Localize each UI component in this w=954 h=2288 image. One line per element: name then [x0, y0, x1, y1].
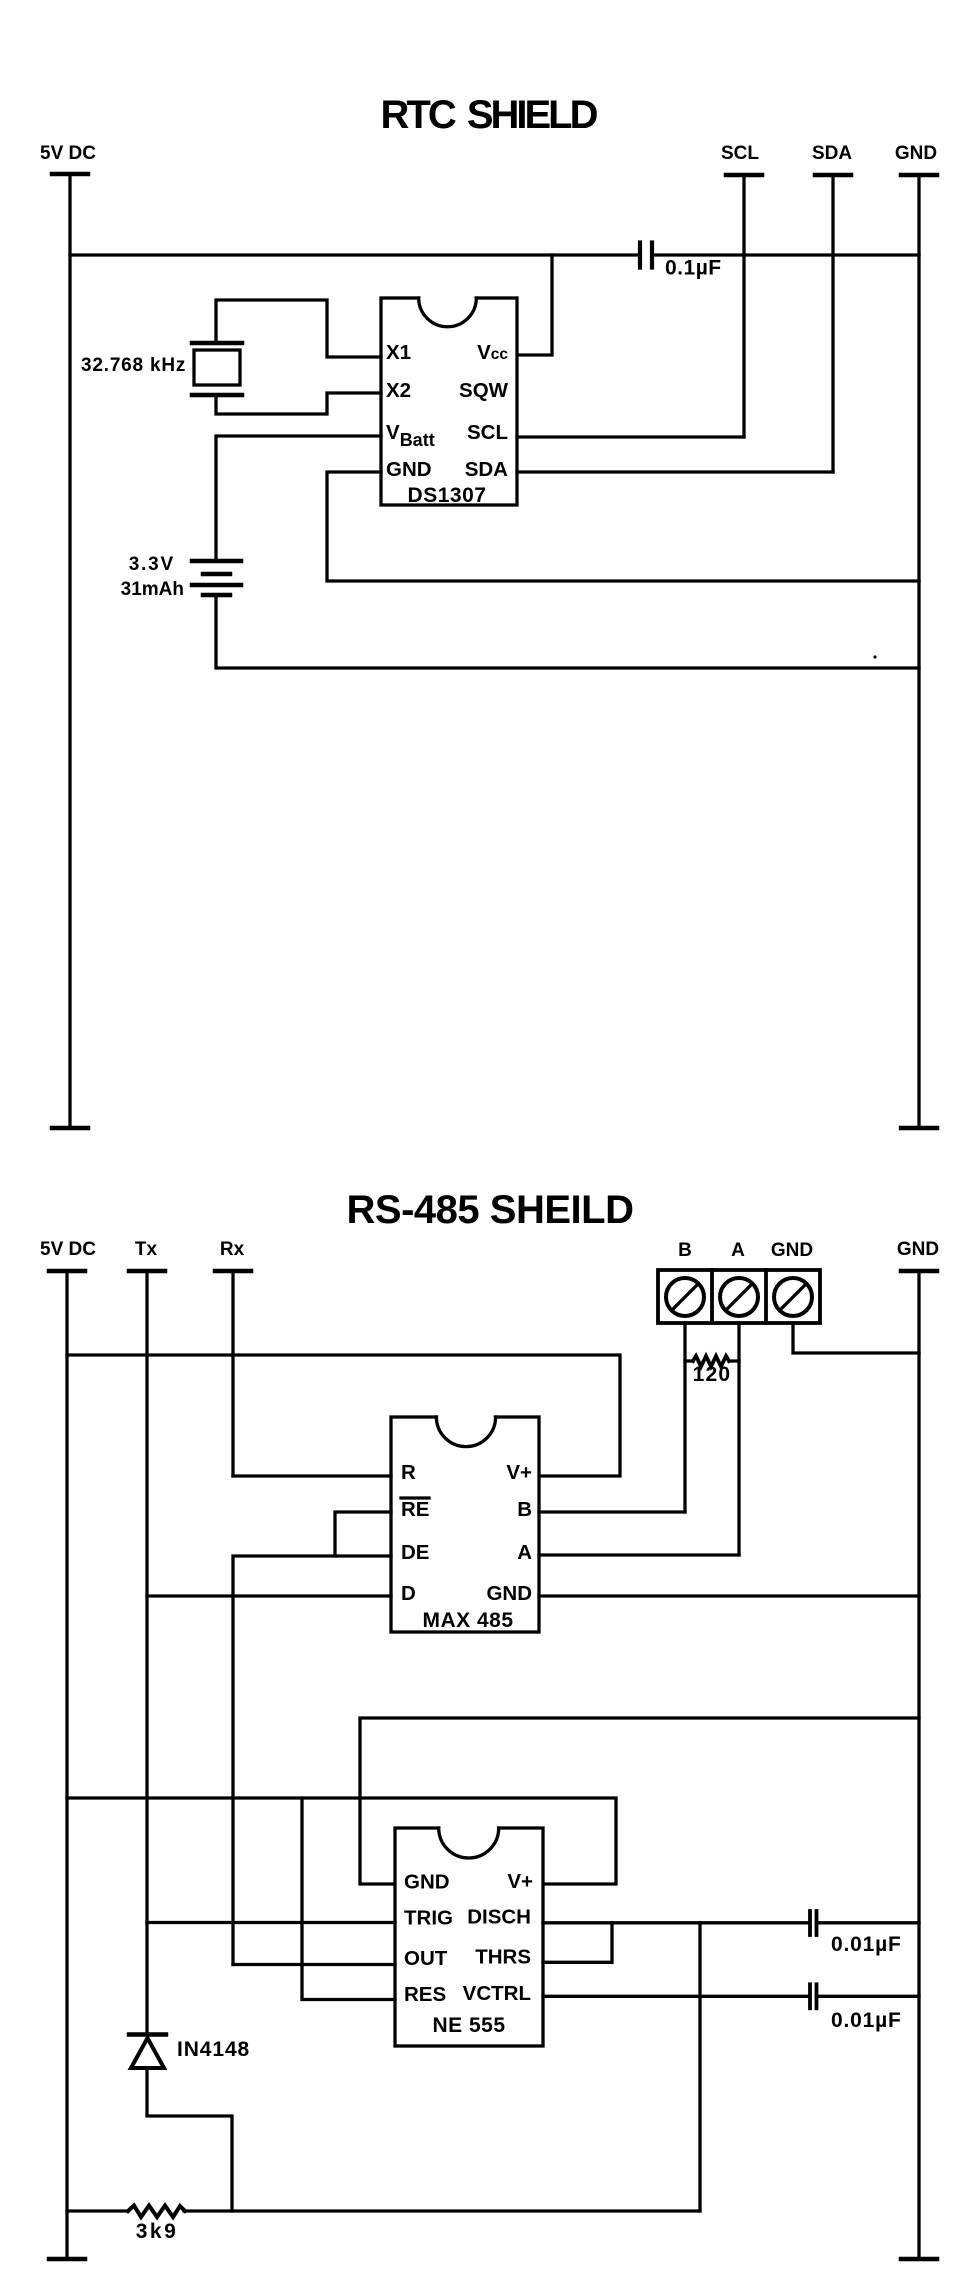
svg-text:TRIG: TRIG: [404, 1907, 453, 1930]
svg-text:5V DC: 5V DC: [40, 143, 96, 164]
svg-text:MAX 485: MAX 485: [422, 1609, 513, 1632]
svg-text:GND: GND: [895, 143, 937, 164]
svg-text:RES: RES: [404, 1983, 446, 2006]
svg-text:DS1307: DS1307: [408, 484, 487, 507]
svg-text:R: R: [401, 1461, 416, 1484]
svg-text:NE 555: NE 555: [432, 2014, 505, 2037]
svg-text:Rx: Rx: [220, 1239, 245, 1260]
svg-text:31mAh: 31mAh: [121, 579, 184, 600]
svg-text:GND: GND: [771, 1240, 813, 1261]
svg-text:SQW: SQW: [459, 379, 509, 402]
svg-text:V+: V+: [506, 1461, 532, 1484]
svg-text:SCL: SCL: [721, 143, 759, 164]
svg-text:RTC SHIELD: RTC SHIELD: [381, 93, 598, 137]
svg-text:DE: DE: [401, 1541, 429, 1564]
svg-text:IN4148: IN4148: [177, 2038, 250, 2061]
svg-text:5V DC: 5V DC: [40, 1239, 96, 1260]
svg-text:DISCH: DISCH: [467, 1906, 531, 1929]
svg-text:120: 120: [693, 1363, 732, 1386]
svg-text:A: A: [731, 1240, 745, 1261]
svg-text:D: D: [401, 1582, 416, 1605]
svg-text:THRS: THRS: [475, 1946, 531, 1969]
svg-text:X1: X1: [386, 341, 411, 364]
svg-text:3k9: 3k9: [136, 2220, 179, 2243]
svg-text:X2: X2: [386, 379, 411, 402]
svg-text:OUT: OUT: [404, 1947, 448, 1970]
svg-text:VCTRL: VCTRL: [463, 1982, 531, 2005]
svg-text:3.3V: 3.3V: [129, 554, 175, 575]
svg-text:32.768 kHz: 32.768 kHz: [81, 355, 186, 376]
svg-text:RE: RE: [401, 1498, 429, 1521]
svg-text:GND: GND: [386, 458, 432, 481]
svg-text:SDA: SDA: [465, 458, 508, 481]
svg-text:B: B: [678, 1240, 692, 1261]
svg-text:GND: GND: [486, 1582, 532, 1605]
svg-text:GND: GND: [404, 1871, 450, 1894]
svg-text:0.01µF: 0.01µF: [831, 2009, 902, 2032]
svg-text:RS-485 SHEILD: RS-485 SHEILD: [347, 1188, 634, 1232]
svg-text:0.01µF: 0.01µF: [831, 1933, 902, 1956]
svg-text:B: B: [517, 1498, 532, 1521]
svg-text:SCL: SCL: [467, 421, 508, 444]
svg-text:0.1µF: 0.1µF: [665, 257, 722, 280]
svg-text:GND: GND: [897, 1239, 939, 1260]
svg-text:A: A: [517, 1541, 532, 1564]
svg-text:V+: V+: [507, 1870, 533, 1893]
svg-text:Tx: Tx: [135, 1239, 158, 1260]
svg-text:SDA: SDA: [812, 143, 852, 164]
